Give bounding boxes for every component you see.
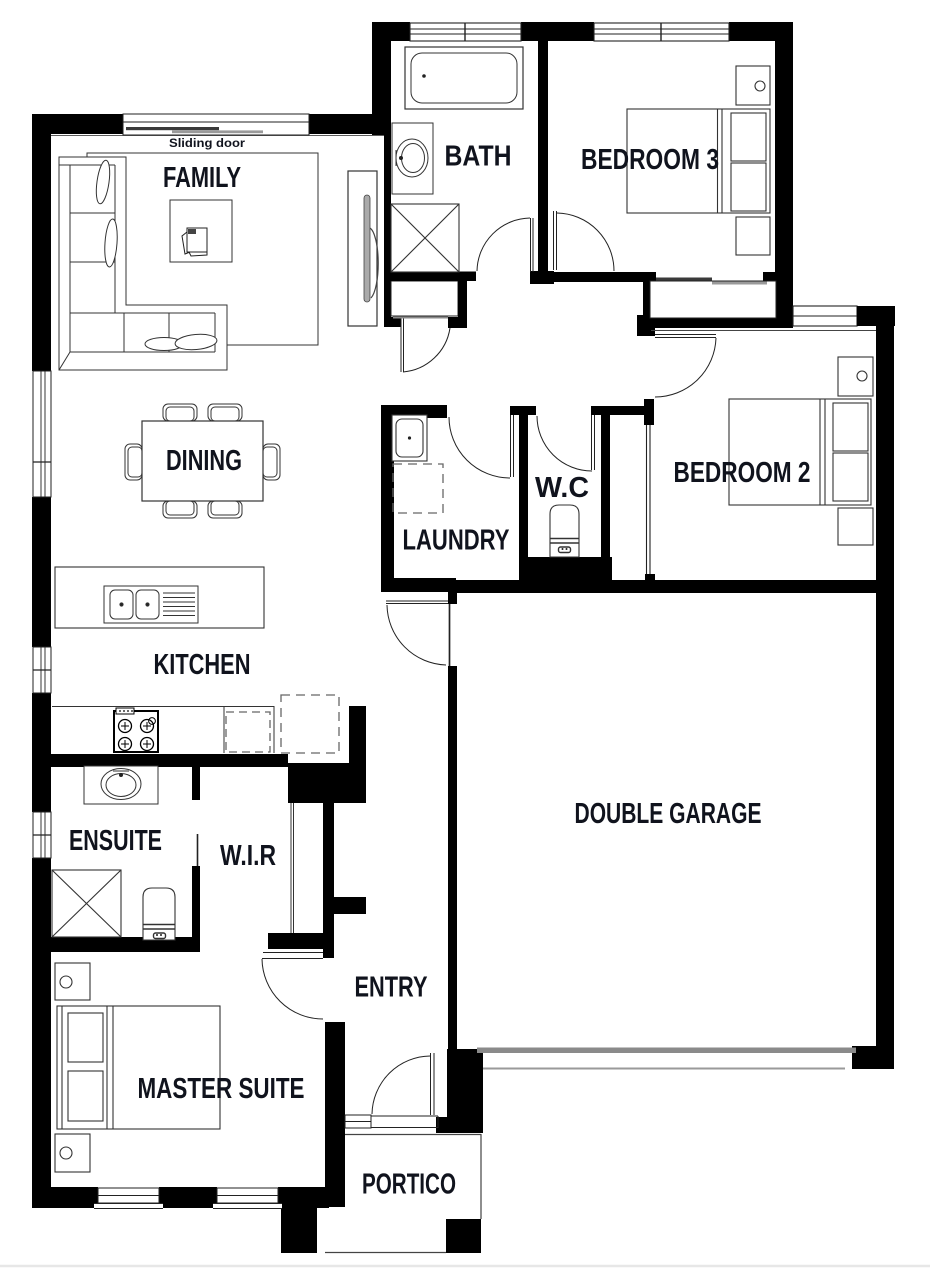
svg-text:LAUNDRY: LAUNDRY (403, 525, 510, 557)
svg-text:ENTRY: ENTRY (355, 972, 428, 1004)
svg-text:DINING: DINING (166, 445, 242, 477)
svg-text:W.C: W.C (535, 472, 589, 504)
svg-text:W.I.R: W.I.R (220, 840, 276, 872)
svg-text:PORTICO: PORTICO (362, 1169, 456, 1201)
svg-text:BEDROOM 3: BEDROOM 3 (581, 144, 719, 176)
svg-text:Sliding door: Sliding door (169, 136, 245, 150)
svg-text:ENSUITE: ENSUITE (69, 825, 162, 857)
svg-text:DOUBLE GARAGE: DOUBLE GARAGE (575, 798, 762, 830)
svg-text:MASTER SUITE: MASTER SUITE (138, 1073, 305, 1105)
svg-text:FAMILY: FAMILY (163, 162, 241, 194)
svg-text:BEDROOM 2: BEDROOM 2 (674, 457, 811, 489)
svg-text:KITCHEN: KITCHEN (154, 649, 251, 681)
svg-text:BATH: BATH (445, 141, 512, 173)
